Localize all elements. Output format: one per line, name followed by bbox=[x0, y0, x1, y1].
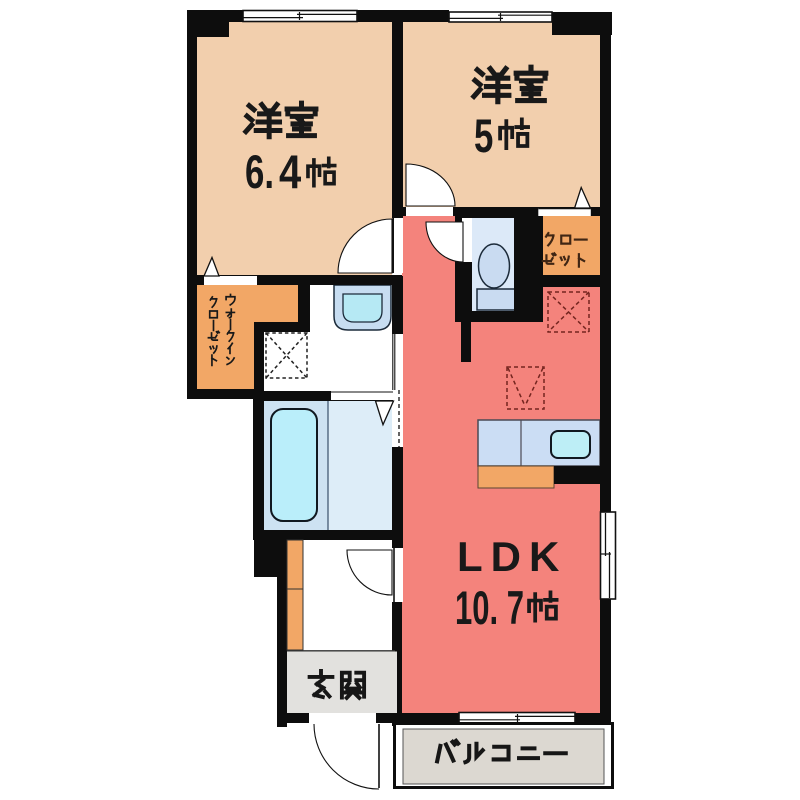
svg-text:4: 4 bbox=[279, 147, 302, 199]
svg-text:LDK: LDK bbox=[457, 533, 567, 580]
svg-text:10. 7: 10. 7 bbox=[455, 583, 524, 635]
svg-text:5: 5 bbox=[474, 110, 493, 162]
svg-text:6.: 6. bbox=[245, 146, 274, 198]
